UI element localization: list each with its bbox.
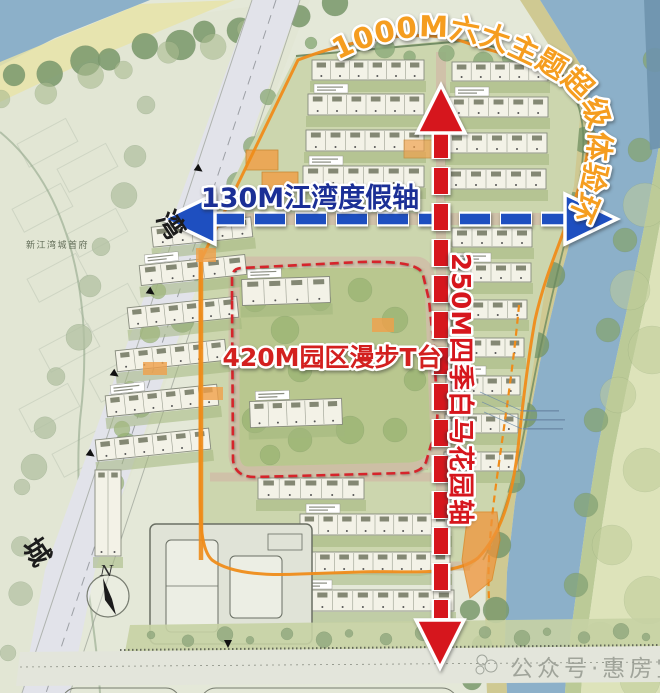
- tree-icon: [345, 629, 353, 637]
- roof-detail: [147, 393, 157, 399]
- row-label-line: [458, 93, 477, 94]
- lawn: [298, 536, 452, 547]
- lawn: [306, 116, 426, 127]
- door-dot: [114, 551, 116, 553]
- door-dot: [342, 606, 344, 608]
- row-label-line: [309, 510, 328, 511]
- roof-detail: [474, 100, 484, 105]
- door-dot: [458, 112, 460, 114]
- door-dot: [515, 184, 517, 186]
- door-dot: [498, 112, 500, 114]
- tree-icon: [35, 82, 57, 104]
- tree-icon: [613, 228, 637, 252]
- roof-detail: [477, 231, 487, 236]
- door-dot: [401, 568, 403, 570]
- roof-detail: [168, 305, 178, 311]
- roof-detail: [320, 555, 330, 560]
- tree-icon: [316, 632, 332, 648]
- tree-icon: [564, 573, 588, 597]
- roof-detail: [439, 593, 449, 598]
- roof-detail: [254, 404, 263, 409]
- roof-detail: [98, 473, 105, 478]
- tree-icon: [380, 633, 392, 645]
- roof-detail: [369, 169, 379, 174]
- door-dot: [501, 242, 503, 244]
- door-dot: [508, 428, 510, 430]
- roof-detail: [389, 169, 399, 174]
- roof-detail: [496, 266, 506, 271]
- compass-north-label: N: [99, 562, 114, 580]
- roof-detail: [504, 455, 513, 460]
- door-dot: [335, 146, 337, 148]
- tree-icon: [0, 645, 16, 661]
- roof-detail: [457, 231, 467, 236]
- door-dot: [489, 466, 491, 468]
- roof-detail: [120, 352, 130, 358]
- door-dot: [537, 112, 539, 114]
- tree-icon: [66, 324, 92, 350]
- roof-detail: [138, 437, 148, 443]
- roof-detail: [476, 266, 486, 271]
- door-dot: [310, 494, 312, 496]
- roof-detail: [486, 455, 495, 460]
- roof-detail: [472, 136, 482, 141]
- door-dot: [358, 75, 360, 77]
- roof-detail: [110, 397, 120, 403]
- roof-detail: [454, 100, 464, 105]
- roof-detail: [273, 403, 282, 408]
- door-dot: [352, 494, 354, 496]
- building-row: [93, 470, 123, 568]
- roof-detail: [378, 555, 388, 560]
- roof-detail: [350, 133, 360, 138]
- site-plan-svg: 1000M六大主题超级体验环 130M江湾度假轴 420M园区漫步T台 250M…: [0, 0, 660, 693]
- tree-icon: [124, 145, 146, 167]
- row-label-chip: [314, 84, 348, 93]
- door-dot: [481, 242, 483, 244]
- roof-detail: [380, 517, 389, 522]
- tree-icon: [47, 368, 65, 386]
- door-dot: [461, 242, 463, 244]
- promenade-loop-label: 420M园区漫步T台: [222, 343, 441, 372]
- roof-detail: [373, 63, 382, 68]
- door-dot: [402, 606, 404, 608]
- door-dot: [268, 494, 270, 496]
- tree-icon: [383, 418, 407, 442]
- roof-detail: [417, 517, 426, 522]
- roof-detail: [416, 555, 426, 560]
- row-label-line: [317, 90, 336, 91]
- roof-detail: [358, 593, 368, 598]
- roof-detail: [390, 133, 400, 138]
- tree-icon: [9, 582, 33, 606]
- roof-detail: [348, 169, 358, 174]
- tree-icon: [543, 628, 551, 636]
- estate-label: 新江湾城首府: [26, 239, 89, 251]
- roof-detail: [166, 391, 176, 397]
- tree-icon: [460, 600, 480, 620]
- door-dot: [423, 606, 425, 608]
- roof-detail: [370, 133, 380, 138]
- door-dot: [421, 530, 423, 532]
- door-dot: [382, 606, 384, 608]
- roof-detail: [497, 231, 507, 236]
- tree-icon: [438, 45, 454, 61]
- roof-detail: [132, 309, 142, 315]
- roof-detail: [516, 266, 526, 271]
- door-dot: [101, 551, 103, 553]
- door-dot: [490, 428, 492, 430]
- door-dot: [331, 494, 333, 496]
- tree-icon: [21, 454, 47, 480]
- door-dot: [395, 75, 397, 77]
- lawn: [444, 190, 548, 201]
- roof-detail: [175, 346, 185, 352]
- roof-detail: [354, 63, 363, 68]
- building-row: [445, 133, 549, 165]
- tree-icon: [78, 63, 104, 89]
- door-dot: [521, 242, 523, 244]
- tree-icon: [34, 417, 56, 439]
- roof-detail: [359, 555, 369, 560]
- tree-icon: [574, 493, 598, 517]
- row-label-line: [317, 87, 343, 88]
- door-dot: [516, 314, 518, 316]
- door-dot: [414, 75, 416, 77]
- roof-detail: [309, 402, 318, 407]
- tree-icon: [483, 597, 509, 623]
- tree-icon: [182, 635, 194, 647]
- roof-detail: [328, 169, 338, 174]
- door-dot: [324, 568, 326, 570]
- door-dot: [355, 110, 357, 112]
- roof-detail: [269, 281, 280, 286]
- tree-icon: [147, 631, 155, 639]
- door-dot: [455, 184, 457, 186]
- roof-detail: [452, 136, 462, 141]
- door-dot: [383, 530, 385, 532]
- door-dot: [376, 75, 378, 77]
- tree-icon: [200, 34, 226, 60]
- roof-detail: [308, 169, 318, 174]
- roof-detail: [285, 481, 296, 486]
- tree-icon: [271, 316, 299, 344]
- tree-icon: [642, 633, 650, 641]
- row-label-line: [312, 162, 331, 163]
- door-dot: [321, 606, 323, 608]
- site-plan: 1000M六大主题超级体验环 130M江湾度假轴 420M园区漫步T台 250M…: [0, 0, 660, 693]
- watermark-text: 公众号·惠房宝: [510, 656, 660, 682]
- door-dot: [382, 568, 384, 570]
- roof-detail: [338, 593, 348, 598]
- tree-icon: [79, 275, 101, 297]
- roof-detail: [305, 517, 314, 522]
- roof-detail: [419, 593, 429, 598]
- roof-detail: [491, 172, 501, 177]
- roof-detail: [361, 517, 370, 522]
- tree-icon: [592, 525, 632, 565]
- row-label-chip: [306, 504, 340, 513]
- door-dot: [491, 390, 493, 392]
- door-dot: [477, 314, 479, 316]
- door-dot: [420, 568, 422, 570]
- door-dot: [516, 148, 518, 150]
- roof-detail: [397, 555, 407, 560]
- tree-icon: [628, 138, 652, 162]
- door-dot: [456, 148, 458, 150]
- door-dot: [336, 110, 338, 112]
- roof-detail: [512, 303, 522, 308]
- roof-detail: [111, 473, 118, 478]
- roof-detail: [327, 481, 338, 486]
- tree-icon: [281, 628, 293, 640]
- roof-detail: [495, 65, 505, 70]
- tree-icon: [137, 96, 155, 114]
- door-dot: [497, 314, 499, 316]
- tree-icon: [305, 37, 317, 49]
- door-dot: [476, 148, 478, 150]
- roof-detail: [471, 172, 481, 177]
- roof-detail: [409, 169, 419, 174]
- door-dot: [362, 568, 364, 570]
- row-label-chip: [455, 87, 489, 96]
- roof-detail: [176, 433, 186, 439]
- door-dot: [365, 530, 367, 532]
- door-dot: [289, 494, 291, 496]
- door-dot: [362, 606, 364, 608]
- roof-detail: [205, 301, 215, 307]
- row-label-line: [309, 507, 335, 508]
- roof-detail: [491, 341, 501, 346]
- tree-icon: [596, 318, 620, 342]
- roof-detail: [306, 481, 317, 486]
- roof-detail: [150, 307, 160, 313]
- door-dot: [478, 112, 480, 114]
- roof-detail: [492, 136, 502, 141]
- roof-detail: [313, 279, 324, 284]
- roof-detail: [513, 100, 523, 105]
- door-dot: [346, 530, 348, 532]
- door-dot: [343, 568, 345, 570]
- roof-detail: [493, 303, 503, 308]
- roof-detail: [332, 97, 342, 102]
- tree-icon: [115, 61, 133, 79]
- roof-detail: [532, 136, 542, 141]
- door-dot: [495, 184, 497, 186]
- door-dot: [517, 112, 519, 114]
- tree-icon: [578, 632, 590, 644]
- roof-detail: [311, 133, 321, 138]
- roof-detail: [398, 593, 408, 598]
- door-dot: [394, 110, 396, 112]
- row-label-chip: [247, 268, 281, 278]
- door-dot: [320, 75, 322, 77]
- tree-icon: [610, 270, 650, 310]
- roof-detail: [119, 439, 129, 445]
- roof-detail: [157, 435, 167, 441]
- roof-detail: [187, 303, 197, 309]
- tree-icon: [92, 238, 110, 256]
- door-dot: [394, 146, 396, 148]
- door-dot: [315, 146, 317, 148]
- tree-icon: [246, 636, 254, 644]
- door-dot: [535, 184, 537, 186]
- roof-detail: [533, 100, 543, 105]
- roof-detail: [129, 395, 139, 401]
- row-label-chip: [255, 390, 289, 400]
- roof-detail: [138, 350, 148, 356]
- row-label-line: [312, 159, 338, 160]
- bay-axis-label: 130M江湾度假轴: [201, 182, 419, 214]
- tree-icon: [404, 369, 426, 391]
- door-dot: [508, 466, 510, 468]
- roof-detail: [323, 517, 332, 522]
- building-row: [444, 169, 548, 201]
- door-dot: [496, 148, 498, 150]
- roof-detail: [156, 348, 166, 354]
- door-dot: [317, 110, 319, 112]
- roof-detail: [476, 65, 486, 70]
- roof-detail: [211, 342, 221, 348]
- roof-detail: [436, 555, 446, 560]
- roof-detail: [348, 481, 359, 486]
- roof-detail: [339, 555, 349, 560]
- door-dot: [413, 110, 415, 112]
- roof-detail: [331, 133, 341, 138]
- garden-axis-label: 250M四季白马花园轴: [445, 253, 476, 526]
- tree-icon: [111, 183, 137, 209]
- door-dot: [520, 277, 522, 279]
- roof-detail: [511, 172, 521, 177]
- roof-detail: [457, 65, 467, 70]
- door-dot: [518, 76, 520, 78]
- roof-detail: [352, 97, 362, 102]
- door-dot: [500, 277, 502, 279]
- row-label-line: [458, 90, 484, 91]
- roof-detail: [486, 417, 495, 422]
- row-label-chip: [309, 156, 343, 165]
- roof-detail: [247, 281, 258, 286]
- roof-detail: [371, 97, 381, 102]
- door-dot: [480, 277, 482, 279]
- tree-icon: [514, 630, 530, 646]
- door-dot: [461, 76, 463, 78]
- roof-detail: [512, 136, 522, 141]
- roof-detail: [313, 97, 323, 102]
- roof-detail: [517, 231, 527, 236]
- tree-icon: [14, 479, 30, 495]
- roof-detail: [398, 517, 407, 522]
- tree-icon: [157, 41, 179, 63]
- roof-detail: [494, 100, 504, 105]
- door-dot: [495, 352, 497, 354]
- roof-detail: [378, 593, 388, 598]
- door-dot: [354, 146, 356, 148]
- roof-detail: [184, 389, 194, 395]
- roof-detail: [410, 97, 420, 102]
- tree-icon: [613, 623, 629, 639]
- roof-detail: [291, 402, 300, 407]
- door-dot: [402, 530, 404, 532]
- door-dot: [327, 530, 329, 532]
- roof-detail: [100, 441, 110, 447]
- door-dot: [339, 75, 341, 77]
- roof-detail: [342, 517, 351, 522]
- roof-detail: [291, 280, 302, 285]
- tree-icon: [132, 33, 158, 59]
- roof-detail: [410, 63, 419, 68]
- tree-icon: [348, 278, 372, 302]
- door-dot: [499, 76, 501, 78]
- roof-detail: [531, 172, 541, 177]
- roof-detail: [390, 97, 400, 102]
- roof-detail: [317, 63, 326, 68]
- door-dot: [480, 76, 482, 78]
- roof-detail: [391, 63, 400, 68]
- tree-icon: [260, 445, 280, 465]
- tree-icon: [479, 626, 491, 638]
- roof-detail: [451, 172, 461, 177]
- tree-icon: [600, 377, 636, 413]
- door-dot: [475, 184, 477, 186]
- roof-detail: [263, 481, 274, 486]
- door-dot: [375, 110, 377, 112]
- door-dot: [536, 148, 538, 150]
- roof-detail: [328, 401, 337, 406]
- tree-icon: [584, 408, 608, 432]
- roof-detail: [317, 593, 327, 598]
- tree-icon: [3, 64, 25, 86]
- door-dot: [374, 146, 376, 148]
- lawn: [445, 154, 549, 165]
- roof-detail: [488, 379, 497, 384]
